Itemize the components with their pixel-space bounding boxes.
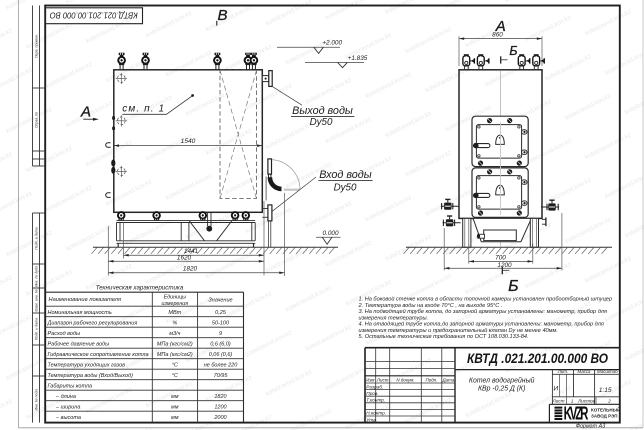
svg-text:И: И — [554, 386, 559, 393]
svg-text:Рабочее давление воды: Рабочее давление воды — [48, 341, 110, 347]
svg-text:Диапазон рабочего регулировани: Диапазон рабочего регулирования — [47, 320, 138, 326]
svg-text:не более 220: не более 220 — [204, 362, 239, 368]
svg-text:1820: 1820 — [183, 265, 198, 272]
svg-text:КОТЕЛЬНЫЙ: КОТЕЛЬНЫЙ — [591, 405, 620, 412]
svg-text:Б: Б — [509, 44, 517, 58]
svg-text:+2.000: +2.000 — [322, 40, 342, 47]
svg-text:измерения: измерения — [162, 301, 189, 307]
svg-text:%: % — [172, 320, 177, 326]
svg-text:Справ. №: Справ. № — [34, 112, 38, 128]
svg-text:Выход воды: Выход воды — [292, 105, 353, 117]
svg-text:Формат А3: Формат А3 — [576, 423, 606, 429]
svg-text:9: 9 — [219, 331, 222, 337]
svg-text:Значение: Значение — [208, 298, 232, 304]
svg-text:ЗАВОД РЭП: ЗАВОД РЭП — [591, 414, 618, 419]
svg-text:0,06 (0,6): 0,06 (0,6) — [209, 352, 233, 358]
svg-text:3. На подводящей трубе котла,: 3. На подводящей трубе котла, до запорно… — [359, 308, 607, 315]
svg-text:мм: мм — [171, 394, 179, 400]
svg-text:Наименование показателя: Наименование показателя — [49, 297, 122, 303]
svg-text:мм: мм — [171, 404, 179, 410]
svg-text:4. На отводящей трубе котла,д: 4. На отводящей трубе котла,до запорной … — [359, 321, 604, 328]
svg-text:1. На боковой стенке котла в: 1. На боковой стенке котла в области топ… — [359, 296, 613, 303]
svg-text:Листов: Листов — [577, 399, 596, 404]
svg-text:м3/ч: м3/ч — [169, 331, 180, 337]
svg-text:– высота: – высота — [55, 415, 81, 421]
svg-text:МВт: МВт — [168, 310, 181, 316]
svg-text:Инв. № дубл.: Инв. № дубл. — [34, 265, 38, 287]
svg-text:КВТД .021.201.00.000 ВО: КВТД .021.201.00.000 ВО — [467, 351, 608, 366]
svg-text:1200: 1200 — [214, 404, 227, 410]
svg-text:Разраб.: Разраб. — [366, 384, 383, 389]
svg-text:°С: °С — [172, 373, 178, 379]
svg-text:Лит.: Лит. — [557, 369, 568, 374]
svg-text:0,6 (6,0): 0,6 (6,0) — [210, 341, 231, 347]
svg-text:N докум.: N докум. — [396, 378, 414, 383]
svg-text:Дата: Дата — [441, 378, 454, 383]
svg-text:Габариты котла: Габариты котла — [48, 383, 93, 389]
svg-text:5. Остальные технические треб: 5. Остальные технические требования по О… — [359, 334, 529, 340]
svg-text:70/95: 70/95 — [214, 373, 229, 379]
svg-text:КВТД.021.201.00.000 ВО: КВТД.021.201.00.000 ВО — [49, 11, 138, 21]
svg-text:2000: 2000 — [213, 415, 227, 421]
svg-text:Единицы: Единицы — [164, 295, 186, 301]
svg-text:МПа (кгс/см2): МПа (кгс/см2) — [157, 352, 193, 358]
svg-text:Инв. № подл.: Инв. № подл. — [34, 388, 38, 410]
svg-text:1540: 1540 — [181, 138, 196, 145]
svg-text:Перв. примен.: Перв. примен. — [34, 34, 38, 58]
svg-text:Номинальная мощность: Номинальная мощность — [48, 310, 112, 316]
svg-text:Н.контр.: Н.контр. — [366, 411, 386, 416]
svg-text:2. Температура воды на входе: 2. Температура воды на входе 70°С , на в… — [358, 303, 503, 309]
svg-text:Подп. и дата: Подп. и дата — [34, 227, 38, 250]
svg-text:Гидравлическое сопротивление к: Гидравлическое сопротивление котла — [48, 352, 149, 358]
svg-text:1620: 1620 — [177, 255, 192, 262]
svg-text:1: 1 — [571, 399, 574, 404]
svg-text:1:15: 1:15 — [599, 387, 612, 394]
svg-text:860: 860 — [492, 32, 503, 39]
svg-text:Б: Б — [508, 278, 518, 295]
svg-text:Температура уходящих газов: Температура уходящих газов — [48, 362, 126, 368]
svg-text:мм: мм — [171, 415, 179, 421]
svg-text:Взам. инв. №: Взам. инв. № — [34, 289, 38, 311]
svg-text:Масса: Масса — [578, 369, 592, 374]
svg-text:– ширина: – ширина — [55, 404, 80, 410]
svg-text:Вход воды: Вход воды — [319, 169, 371, 181]
svg-text:Dy50: Dy50 — [334, 182, 357, 193]
svg-text:– длина: – длина — [55, 394, 76, 400]
svg-text:Температура воды (Вход/Выход): Температура воды (Вход/Выход) — [48, 373, 134, 379]
svg-text:Расход воды: Расход воды — [48, 331, 81, 337]
svg-text:А: А — [80, 104, 91, 121]
svg-text:0,25: 0,25 — [215, 310, 227, 316]
svg-text:измерения температуры.: измерения температуры. — [359, 315, 429, 321]
svg-text:Подп.: Подп. — [426, 378, 438, 383]
svg-text:Изм: Изм — [366, 378, 374, 383]
svg-text:Подп. и дата: Подп. и дата — [34, 318, 38, 341]
svg-text:Утв.: Утв. — [366, 417, 377, 422]
svg-text:0.000: 0.000 — [323, 230, 339, 237]
svg-text:Котел водогрейный: Котел водогрейный — [469, 377, 535, 385]
svg-text:МПа (кгс/см2): МПа (кгс/см2) — [157, 341, 193, 347]
svg-text:+1.835: +1.835 — [348, 55, 368, 62]
svg-text:Лист: Лист — [376, 378, 389, 383]
svg-text:Лист: Лист — [551, 399, 564, 404]
svg-text:см. п. 1: см. п. 1 — [122, 103, 165, 114]
svg-text:°С: °С — [172, 362, 178, 368]
svg-text:Пров.: Пров. — [366, 391, 378, 396]
svg-text:Техническая характеристика: Техническая характеристика — [96, 284, 184, 291]
svg-text:В: В — [217, 7, 227, 24]
svg-text:700: 700 — [495, 254, 506, 261]
svg-text:Т.контр.: Т.контр. — [366, 398, 385, 403]
svg-text:Dy50: Dy50 — [310, 117, 333, 128]
svg-text:КВр -0,25 Д (К): КВр -0,25 Д (К) — [478, 386, 525, 393]
svg-text:1820: 1820 — [214, 394, 227, 400]
svg-text:Масштаб: Масштаб — [597, 369, 618, 374]
svg-text:50-100: 50-100 — [212, 320, 230, 326]
svg-text:измерения температуры и предох: измерения температуры и предохранительны… — [359, 327, 558, 334]
svg-text:KVZR: KVZR — [564, 404, 589, 424]
svg-text:2: 2 — [607, 399, 611, 404]
svg-text:1200: 1200 — [497, 262, 512, 269]
